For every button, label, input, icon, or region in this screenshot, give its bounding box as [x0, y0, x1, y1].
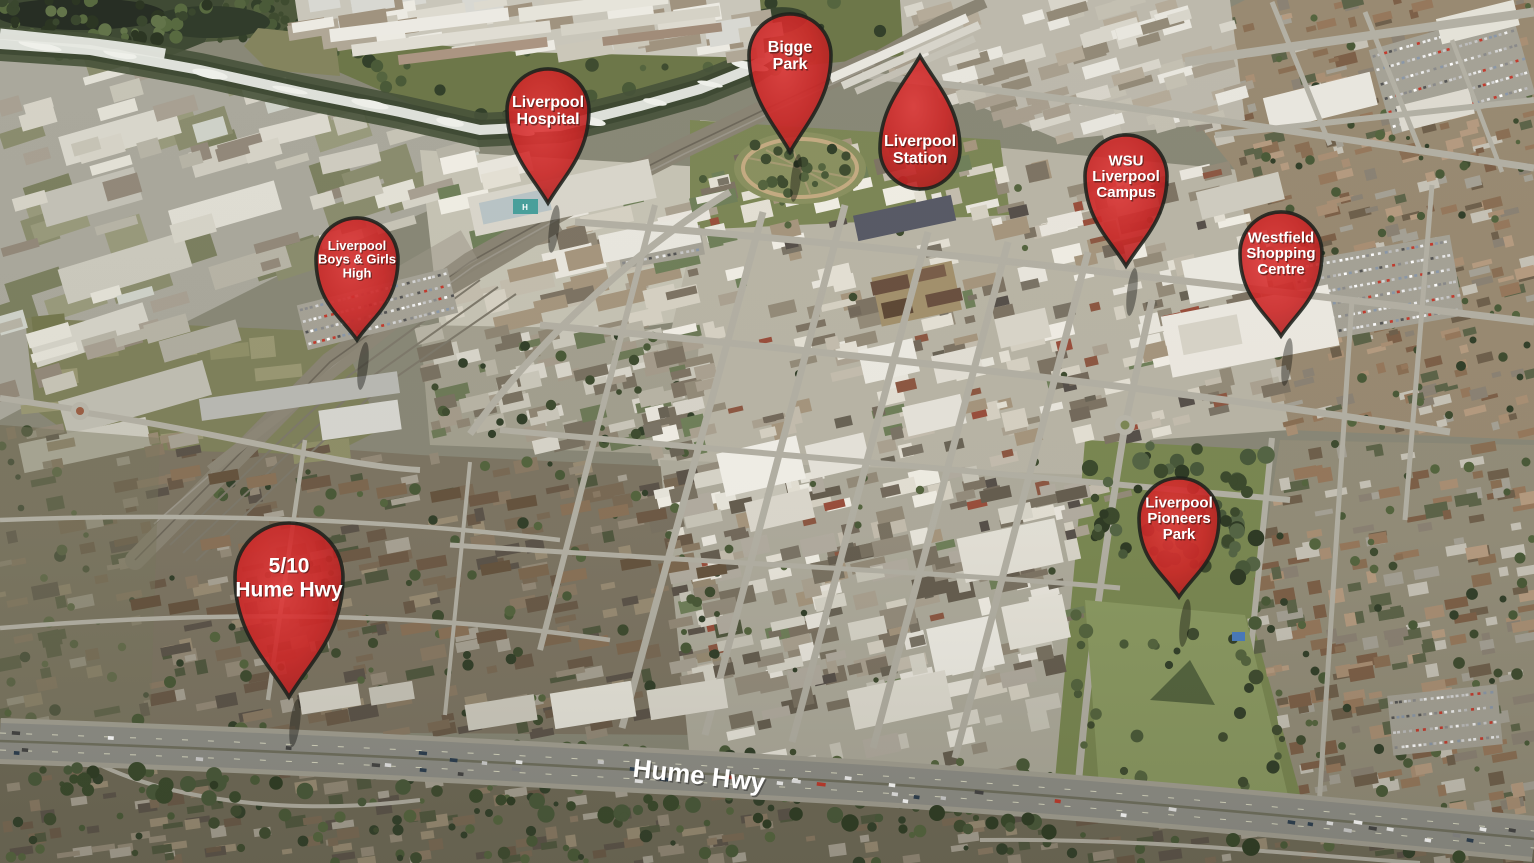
svg-text:Westfield: Westfield — [1248, 229, 1314, 246]
svg-text:Liverpool: Liverpool — [512, 94, 584, 111]
svg-text:Shopping: Shopping — [1246, 245, 1315, 262]
svg-text:Pioneers: Pioneers — [1147, 510, 1210, 527]
svg-text:Liverpool: Liverpool — [328, 238, 387, 253]
svg-text:5/10: 5/10 — [269, 554, 310, 577]
svg-text:WSU: WSU — [1109, 152, 1144, 169]
svg-text:Centre: Centre — [1257, 261, 1305, 278]
svg-text:Liverpool: Liverpool — [884, 133, 956, 150]
svg-text:Hume Hwy: Hume Hwy — [235, 578, 343, 601]
svg-text:Park: Park — [1163, 526, 1196, 543]
svg-text:Station: Station — [893, 150, 947, 167]
svg-text:Bigge: Bigge — [768, 39, 813, 56]
svg-text:Campus: Campus — [1096, 184, 1155, 201]
svg-text:High: High — [343, 265, 372, 280]
svg-text:Liverpool: Liverpool — [1145, 494, 1213, 511]
svg-text:Hospital: Hospital — [516, 111, 579, 128]
svg-text:Liverpool: Liverpool — [1092, 168, 1160, 185]
svg-text:Park: Park — [773, 56, 808, 73]
